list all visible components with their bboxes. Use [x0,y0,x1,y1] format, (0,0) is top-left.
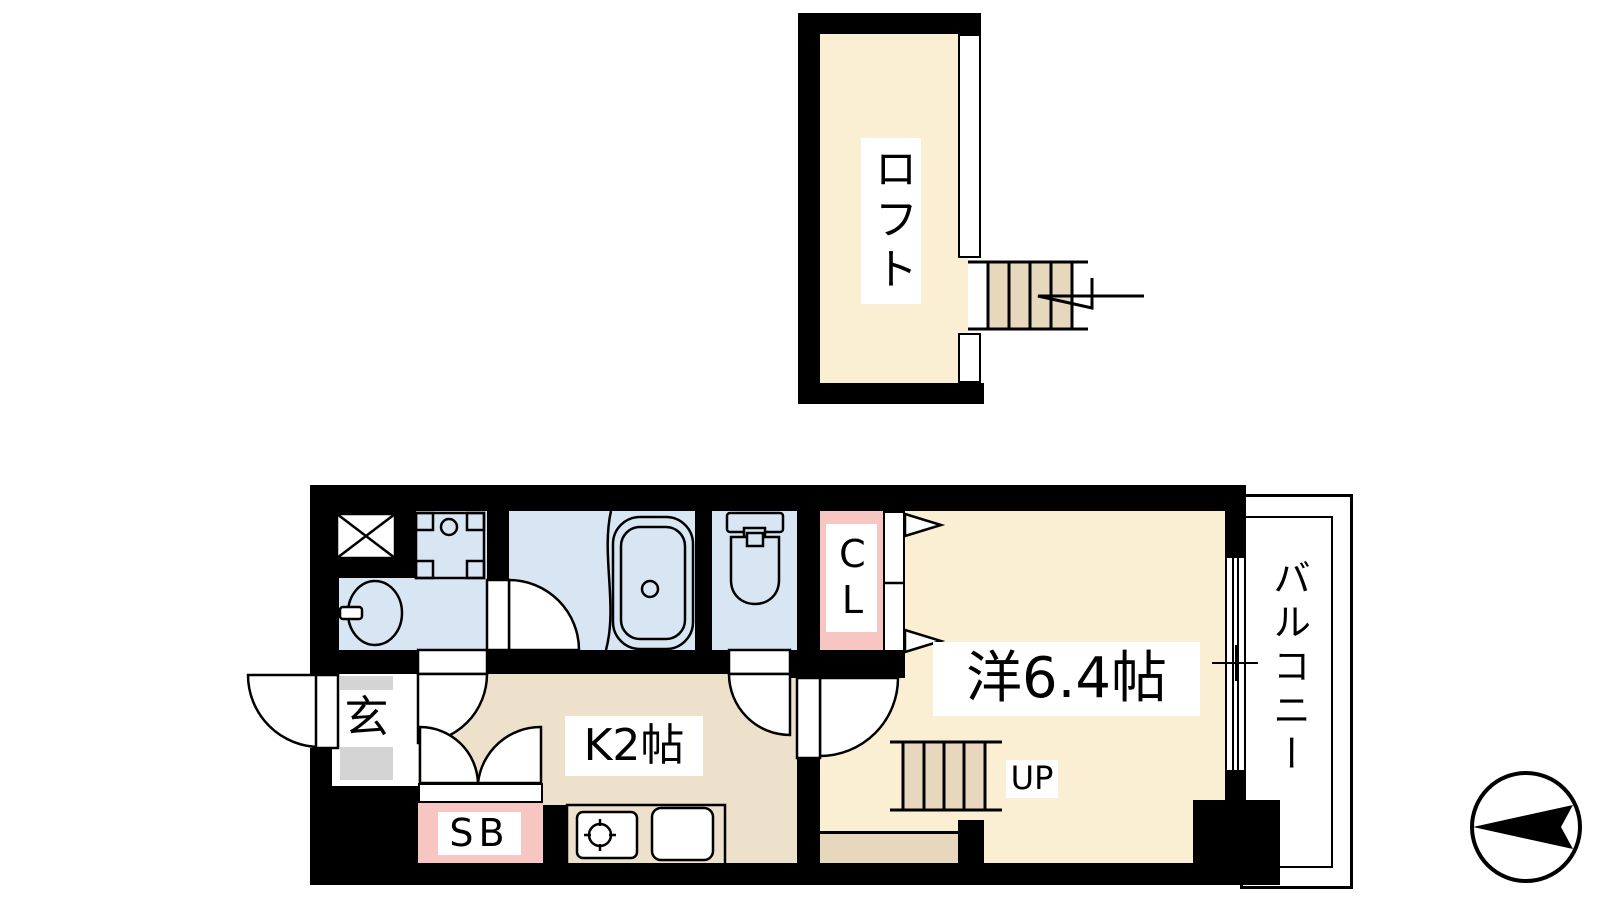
bath-partition-line [606,511,611,650]
western-room-label: 洋6.4帖 [933,642,1200,716]
bathroom-door-icon [487,580,579,650]
room-door-icon [797,678,898,758]
entry-door-icon [248,675,338,748]
closet-label-text: CL [832,532,872,624]
shoe-box-label-text: SB [449,814,509,854]
up-label: UP [1006,760,1058,798]
entrance-label-text: 玄 [345,695,389,741]
kitchen-sink-icon [652,808,713,860]
kitchen-label-text: K2帖 [584,723,685,769]
washing-machine-pan-icon [416,513,484,578]
loft-label: ロフト [861,138,921,304]
north-arrow-icon [1472,773,1580,881]
wash-basin-icon [340,581,402,645]
pipe-shaft-icon [337,514,395,558]
stove-icon [577,812,637,858]
western-room-label-text: 洋6.4帖 [966,650,1167,709]
entrance-label: 玄 [340,690,393,747]
balcony-label-text: バルコニー [1262,558,1317,778]
shoe-box-label: SB [438,812,521,855]
linework-overlay [0,0,1600,900]
folding-closet-door-icon [883,514,941,652]
bathtub-icon [613,517,693,649]
loft-label-text: ロフト [868,146,914,296]
toilet-icon [727,513,783,604]
toilet-door-icon [729,650,790,735]
balcony-label: バルコニー [1266,532,1312,804]
shoe-box-doors-icon [420,727,541,783]
closet-label: CL [826,524,877,632]
floor-plan: ロフト 玄 K2帖 洋6.4帖 UP CL SB バルコニー [0,0,1600,900]
up-stairs-icon [890,742,1002,810]
kitchen-label: K2帖 [565,716,703,776]
up-label-text: UP [1011,762,1054,796]
stair-direction-arrow-icon [1038,278,1144,308]
sliding-window-icon [1212,558,1258,770]
